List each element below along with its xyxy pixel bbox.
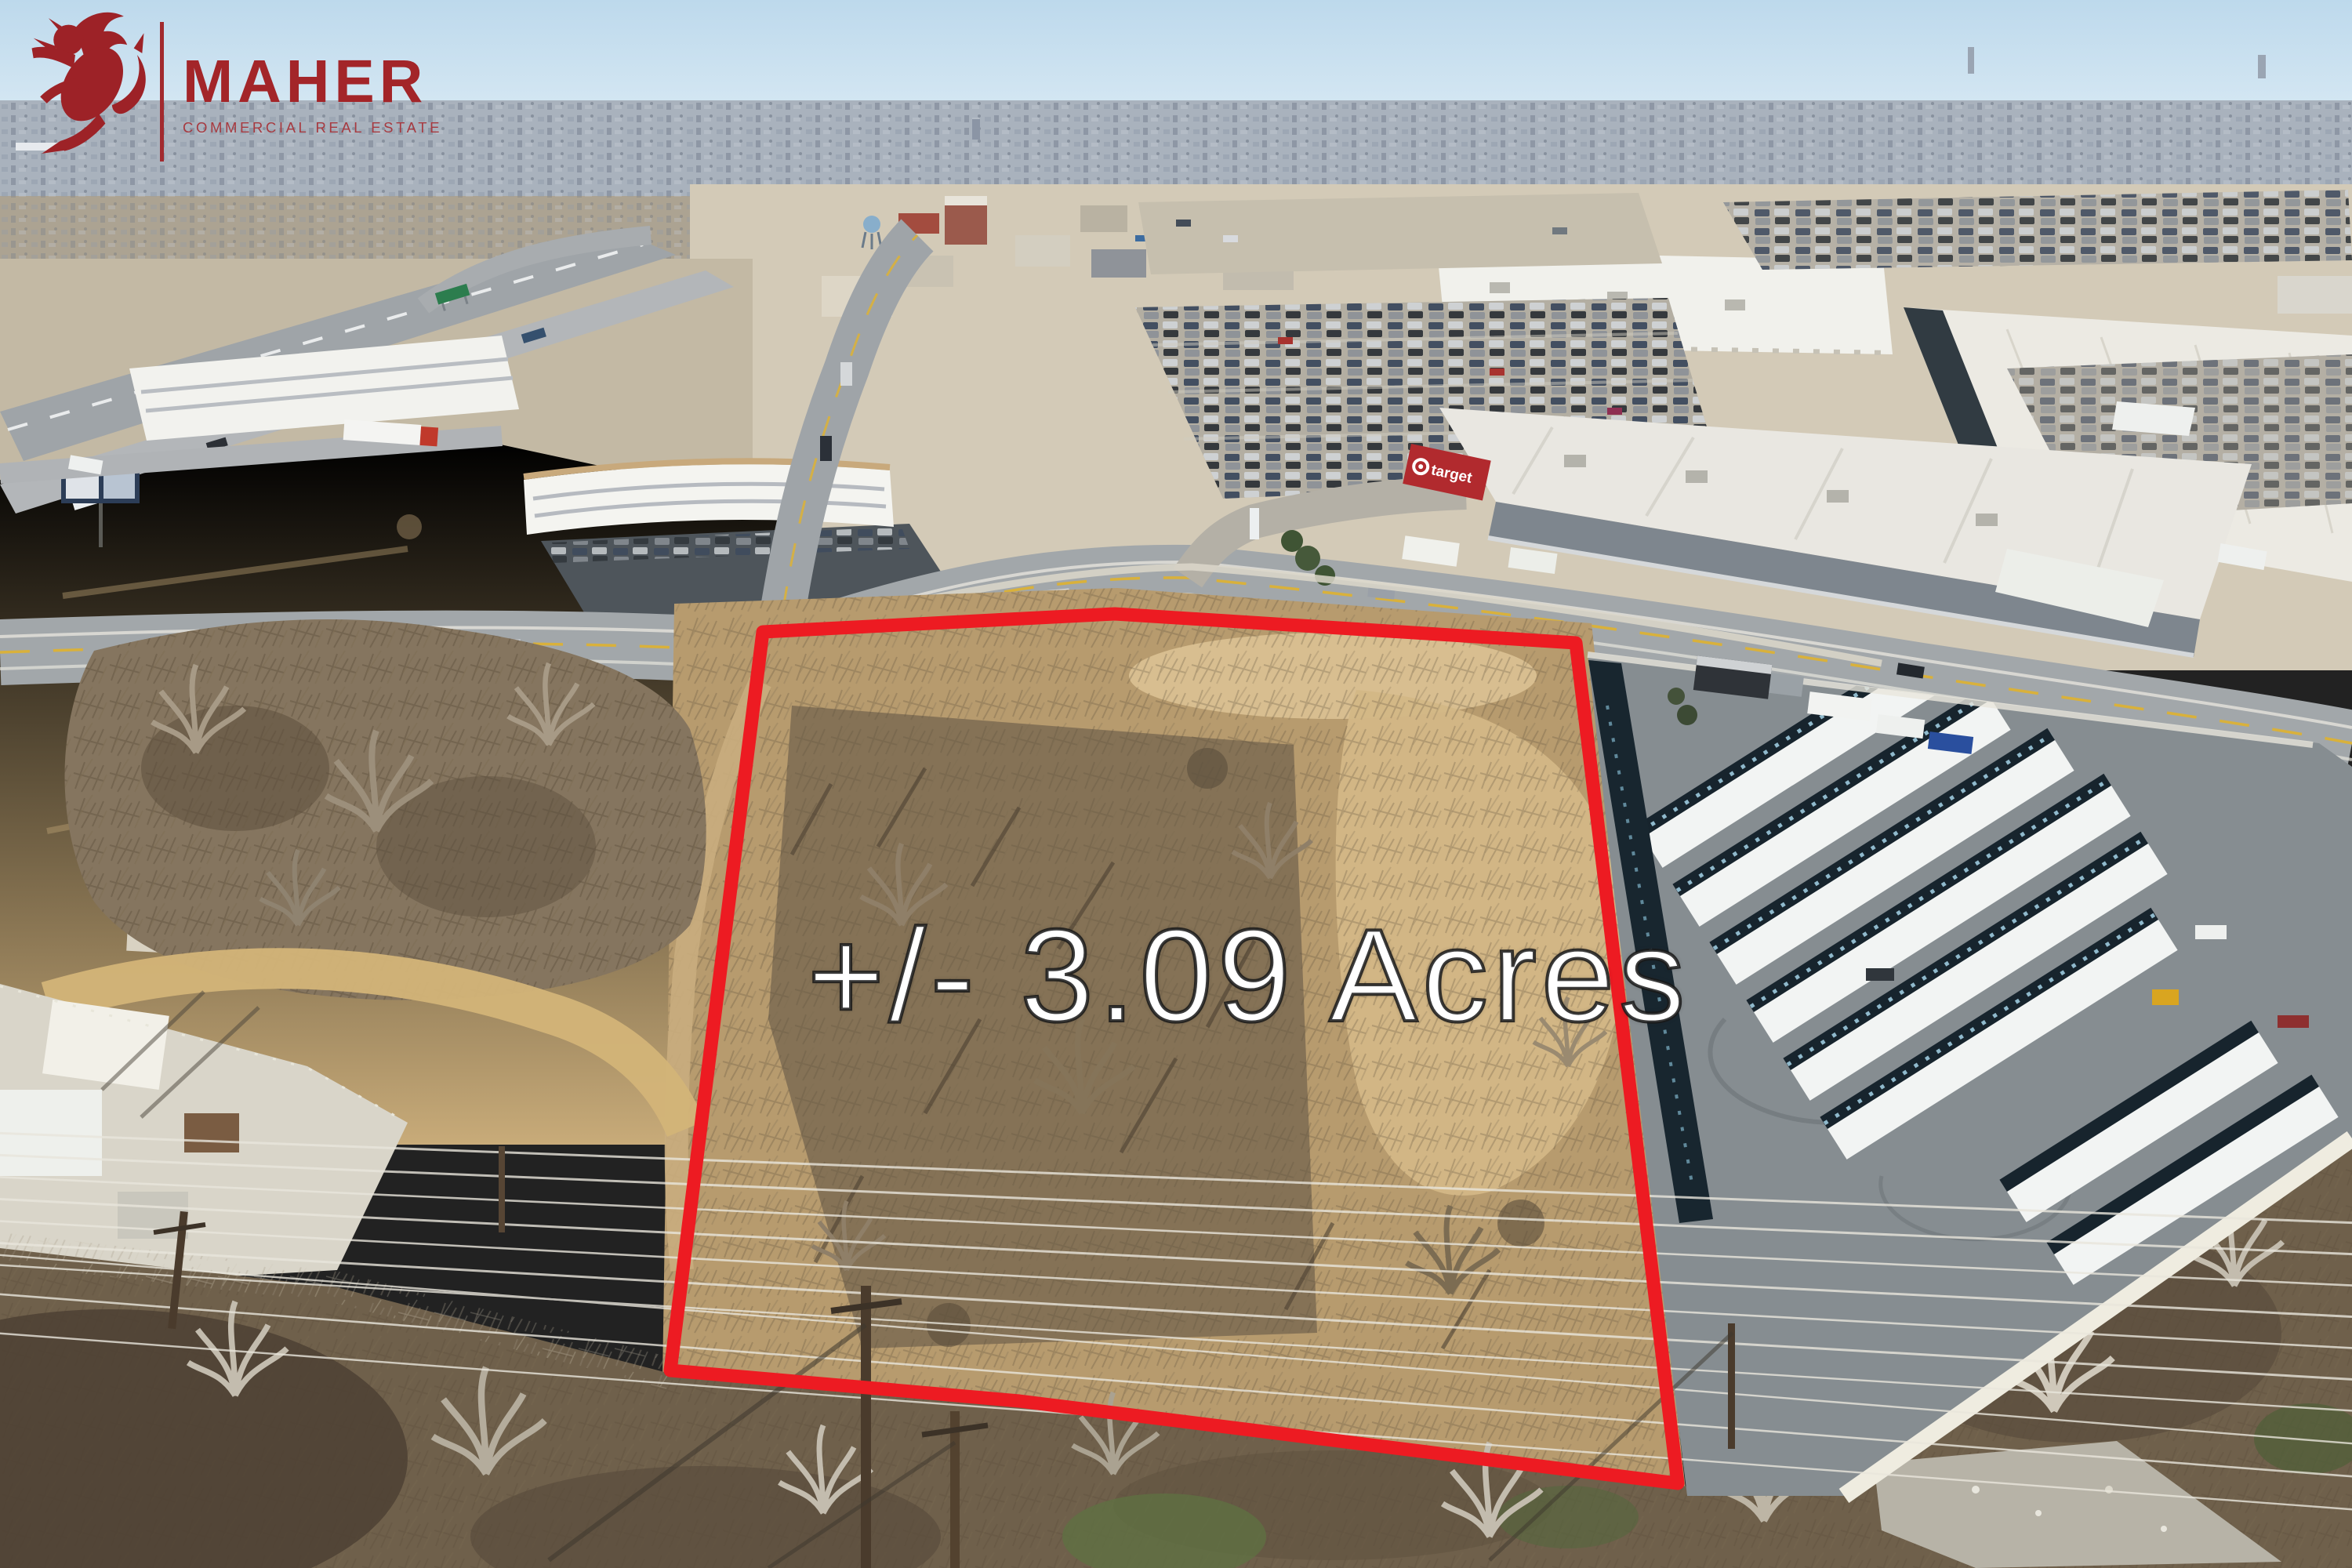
forklift [2152,989,2179,1005]
upper-gravel-lot [1138,193,1662,274]
acreage-label: +/- 3.09 Acres [808,900,1944,1051]
company-tagline: COMMERCIAL REAL ESTATE [183,119,442,136]
brand-divider [160,22,164,162]
mall-parking-north [1723,190,2352,270]
brand-logo: MAHER COMMERCIAL REAL ESTATE [20,5,442,168]
company-name: MAHER [183,52,442,112]
aerial-photograph: target [0,0,2352,1568]
lion-icon [20,5,155,168]
real-estate-aerial-listing: target [0,0,2352,1568]
